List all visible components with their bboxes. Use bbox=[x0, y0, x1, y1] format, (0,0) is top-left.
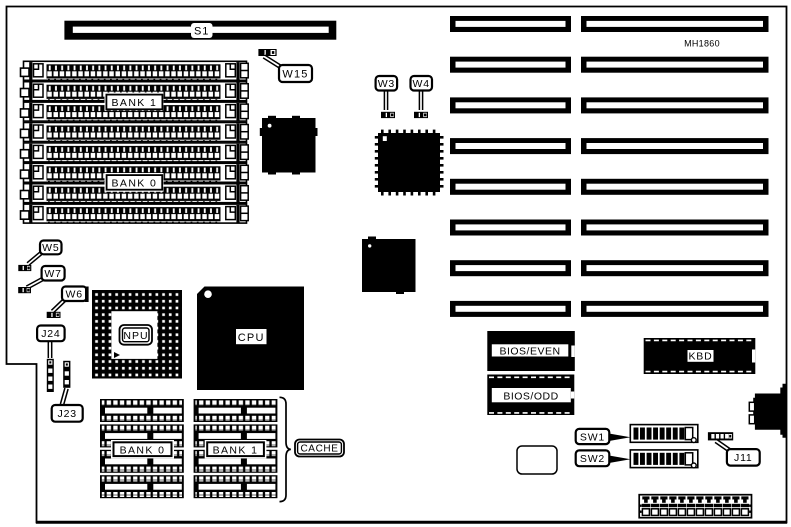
svg-text:BANK 0: BANK 0 bbox=[112, 177, 158, 189]
svg-text:J11: J11 bbox=[734, 452, 753, 464]
svg-text:J24: J24 bbox=[41, 328, 60, 340]
svg-text:W15: W15 bbox=[282, 69, 308, 81]
svg-text:CPU: CPU bbox=[238, 332, 265, 344]
svg-text:S1: S1 bbox=[194, 26, 209, 38]
svg-text:W3: W3 bbox=[378, 78, 395, 90]
svg-text:MH1860: MH1860 bbox=[684, 38, 720, 48]
svg-text:KBD: KBD bbox=[689, 351, 713, 363]
svg-text:SW1: SW1 bbox=[580, 431, 605, 443]
svg-text:BIOS/EVEN: BIOS/EVEN bbox=[499, 345, 560, 357]
svg-text:W7: W7 bbox=[44, 268, 61, 280]
svg-text:BANK 1: BANK 1 bbox=[213, 445, 259, 457]
svg-text:BANK 1: BANK 1 bbox=[112, 97, 158, 109]
svg-text:W5: W5 bbox=[42, 242, 59, 254]
svg-text:SW2: SW2 bbox=[580, 453, 605, 465]
svg-text:BIOS/ODD: BIOS/ODD bbox=[503, 390, 558, 402]
svg-text:W6: W6 bbox=[66, 289, 83, 301]
svg-text:W4: W4 bbox=[413, 78, 430, 90]
svg-text:J23: J23 bbox=[58, 408, 77, 420]
svg-text:BANK 0: BANK 0 bbox=[120, 445, 166, 457]
svg-text:NPU: NPU bbox=[123, 330, 148, 342]
svg-text:CACHE: CACHE bbox=[300, 444, 338, 455]
